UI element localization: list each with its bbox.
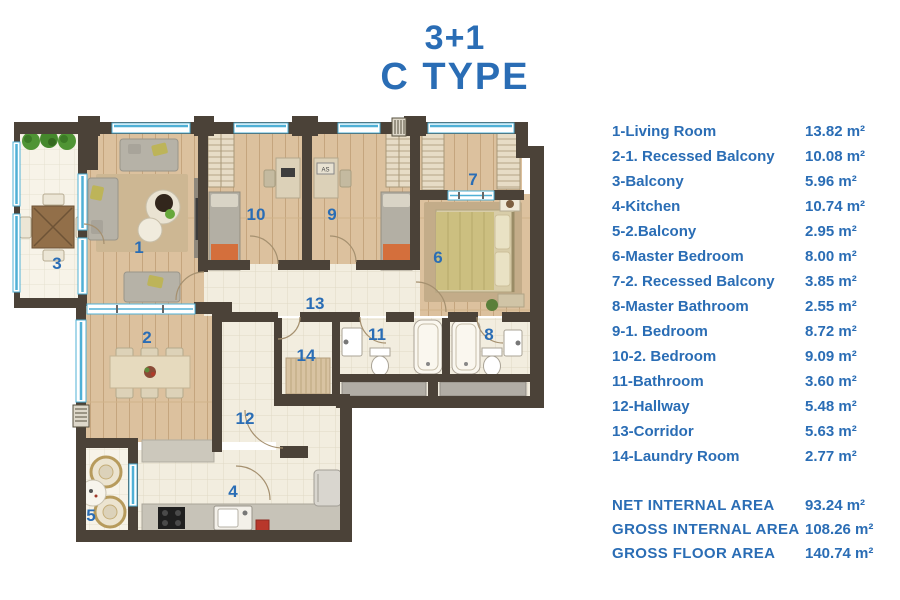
- room-label-mbath: 8: [484, 325, 493, 344]
- legend-room-area: 5.96 m²: [805, 169, 857, 194]
- legend-room-area: 5.63 m²: [805, 419, 857, 444]
- legend-room-area: 8.00 m²: [805, 244, 857, 269]
- room-label-bathroom: 11: [368, 325, 386, 344]
- legend-room-name: 7-2. Recessed Balcony: [612, 273, 775, 290]
- legend-room-name: 13-Corridor: [612, 423, 694, 440]
- dining-furniture: [110, 348, 190, 398]
- legend-room-area: 3.85 m²: [805, 269, 857, 294]
- legend-row: 10-2. Bedroom9.09 m²: [612, 344, 898, 369]
- legend-room-name: 11-Bathroom: [612, 373, 704, 390]
- legend-row: 14-Laundry Room2.77 m²: [612, 444, 898, 469]
- total-row: GROSS INTERNAL AREA108.26 m²: [612, 518, 900, 542]
- floor-plan: AS: [0, 0, 560, 600]
- legend-room-name: 1-Living Room: [612, 123, 716, 140]
- legend-row: 8-Master Bathroom2.55 m²: [612, 294, 898, 319]
- room-label-balcony1: 3: [52, 254, 61, 273]
- legend-room-area: 8.72 m²: [805, 319, 857, 344]
- room-label-hallway: 12: [236, 409, 255, 428]
- legend-row: 4-Kitchen10.74 m²: [612, 194, 898, 219]
- room-label-kitchen: 4: [228, 482, 238, 501]
- room-label-rbalcony2: 7: [468, 170, 477, 189]
- legend-room-name: 9-1. Bedroom: [612, 323, 708, 340]
- total-label: GROSS INTERNAL AREA: [612, 521, 800, 538]
- legend-row: 7-2. Recessed Balcony3.85 m²: [612, 269, 898, 294]
- legend-row: 11-Bathroom3.60 m²: [612, 369, 898, 394]
- legend-room-name: 2-1. Recessed Balcony: [612, 148, 775, 165]
- legend-room-area: 3.60 m²: [805, 369, 857, 394]
- legend-room-name: 6-Master Bedroom: [612, 248, 744, 265]
- legend-row: 12-Hallway5.48 m²: [612, 394, 898, 419]
- legend-row: 6-Master Bedroom8.00 m²: [612, 244, 898, 269]
- sliding-window-master-balcony: [448, 191, 494, 200]
- room-label-corridor: 13: [306, 294, 325, 313]
- area-totals: NET INTERNAL AREA93.24 m² GROSS INTERNAL…: [612, 494, 900, 566]
- legend-room-name: 14-Laundry Room: [612, 448, 740, 465]
- room-label-bedroom2: 10: [247, 205, 266, 224]
- legend-room-name: 12-Hallway: [612, 398, 690, 415]
- legend-row: 13-Corridor5.63 m²: [612, 419, 898, 444]
- sliding-window-living-dining: [87, 304, 195, 314]
- legend-row: 2-1. Recessed Balcony10.08 m²: [612, 144, 898, 169]
- desk-monitor-text: AS: [321, 168, 329, 174]
- legend-room-name: 4-Kitchen: [612, 198, 680, 215]
- room-label-bedroom1: 9: [327, 205, 336, 224]
- total-value: 108.26 m²: [805, 518, 873, 542]
- legend-row: 9-1. Bedroom8.72 m²: [612, 319, 898, 344]
- room-legend: 1-Living Room13.82 m² 2-1. Recessed Balc…: [612, 119, 898, 469]
- room-label-dining: 2: [142, 328, 151, 347]
- legend-room-area: 2.55 m²: [805, 294, 857, 319]
- total-label: GROSS FLOOR AREA: [612, 545, 775, 562]
- legend-room-name: 10-2. Bedroom: [612, 348, 716, 365]
- legend-room-area: 10.08 m²: [805, 144, 865, 169]
- legend-room-name: 8-Master Bathroom: [612, 298, 749, 315]
- legend-room-area: 9.09 m²: [805, 344, 857, 369]
- room-label-laundry: 14: [297, 346, 316, 365]
- total-row: NET INTERNAL AREA93.24 m²: [612, 494, 900, 518]
- room-label-balcony2: 5: [86, 506, 95, 525]
- legend-row: 1-Living Room13.82 m²: [612, 119, 898, 144]
- legend-row: 3-Balcony5.96 m²: [612, 169, 898, 194]
- room-label-master: 6: [433, 248, 442, 267]
- total-label: NET INTERNAL AREA: [612, 497, 775, 514]
- legend-room-area: 5.48 m²: [805, 394, 857, 419]
- total-value: 93.24 m²: [805, 494, 865, 518]
- legend-row: 5-2.Balcony2.95 m²: [612, 219, 898, 244]
- legend-room-area: 2.77 m²: [805, 444, 857, 469]
- legend-room-name: 3-Balcony: [612, 173, 684, 190]
- total-value: 140.74 m²: [805, 542, 873, 566]
- floor-plan-page: 3+1 C TYPE: [0, 0, 900, 600]
- total-row: GROSS FLOOR AREA140.74 m²: [612, 542, 900, 566]
- legend-room-name: 5-2.Balcony: [612, 223, 696, 240]
- legend-room-area: 13.82 m²: [805, 119, 865, 144]
- room-label-living: 1: [134, 238, 143, 257]
- legend-room-area: 10.74 m²: [805, 194, 865, 219]
- legend-room-area: 2.95 m²: [805, 219, 857, 244]
